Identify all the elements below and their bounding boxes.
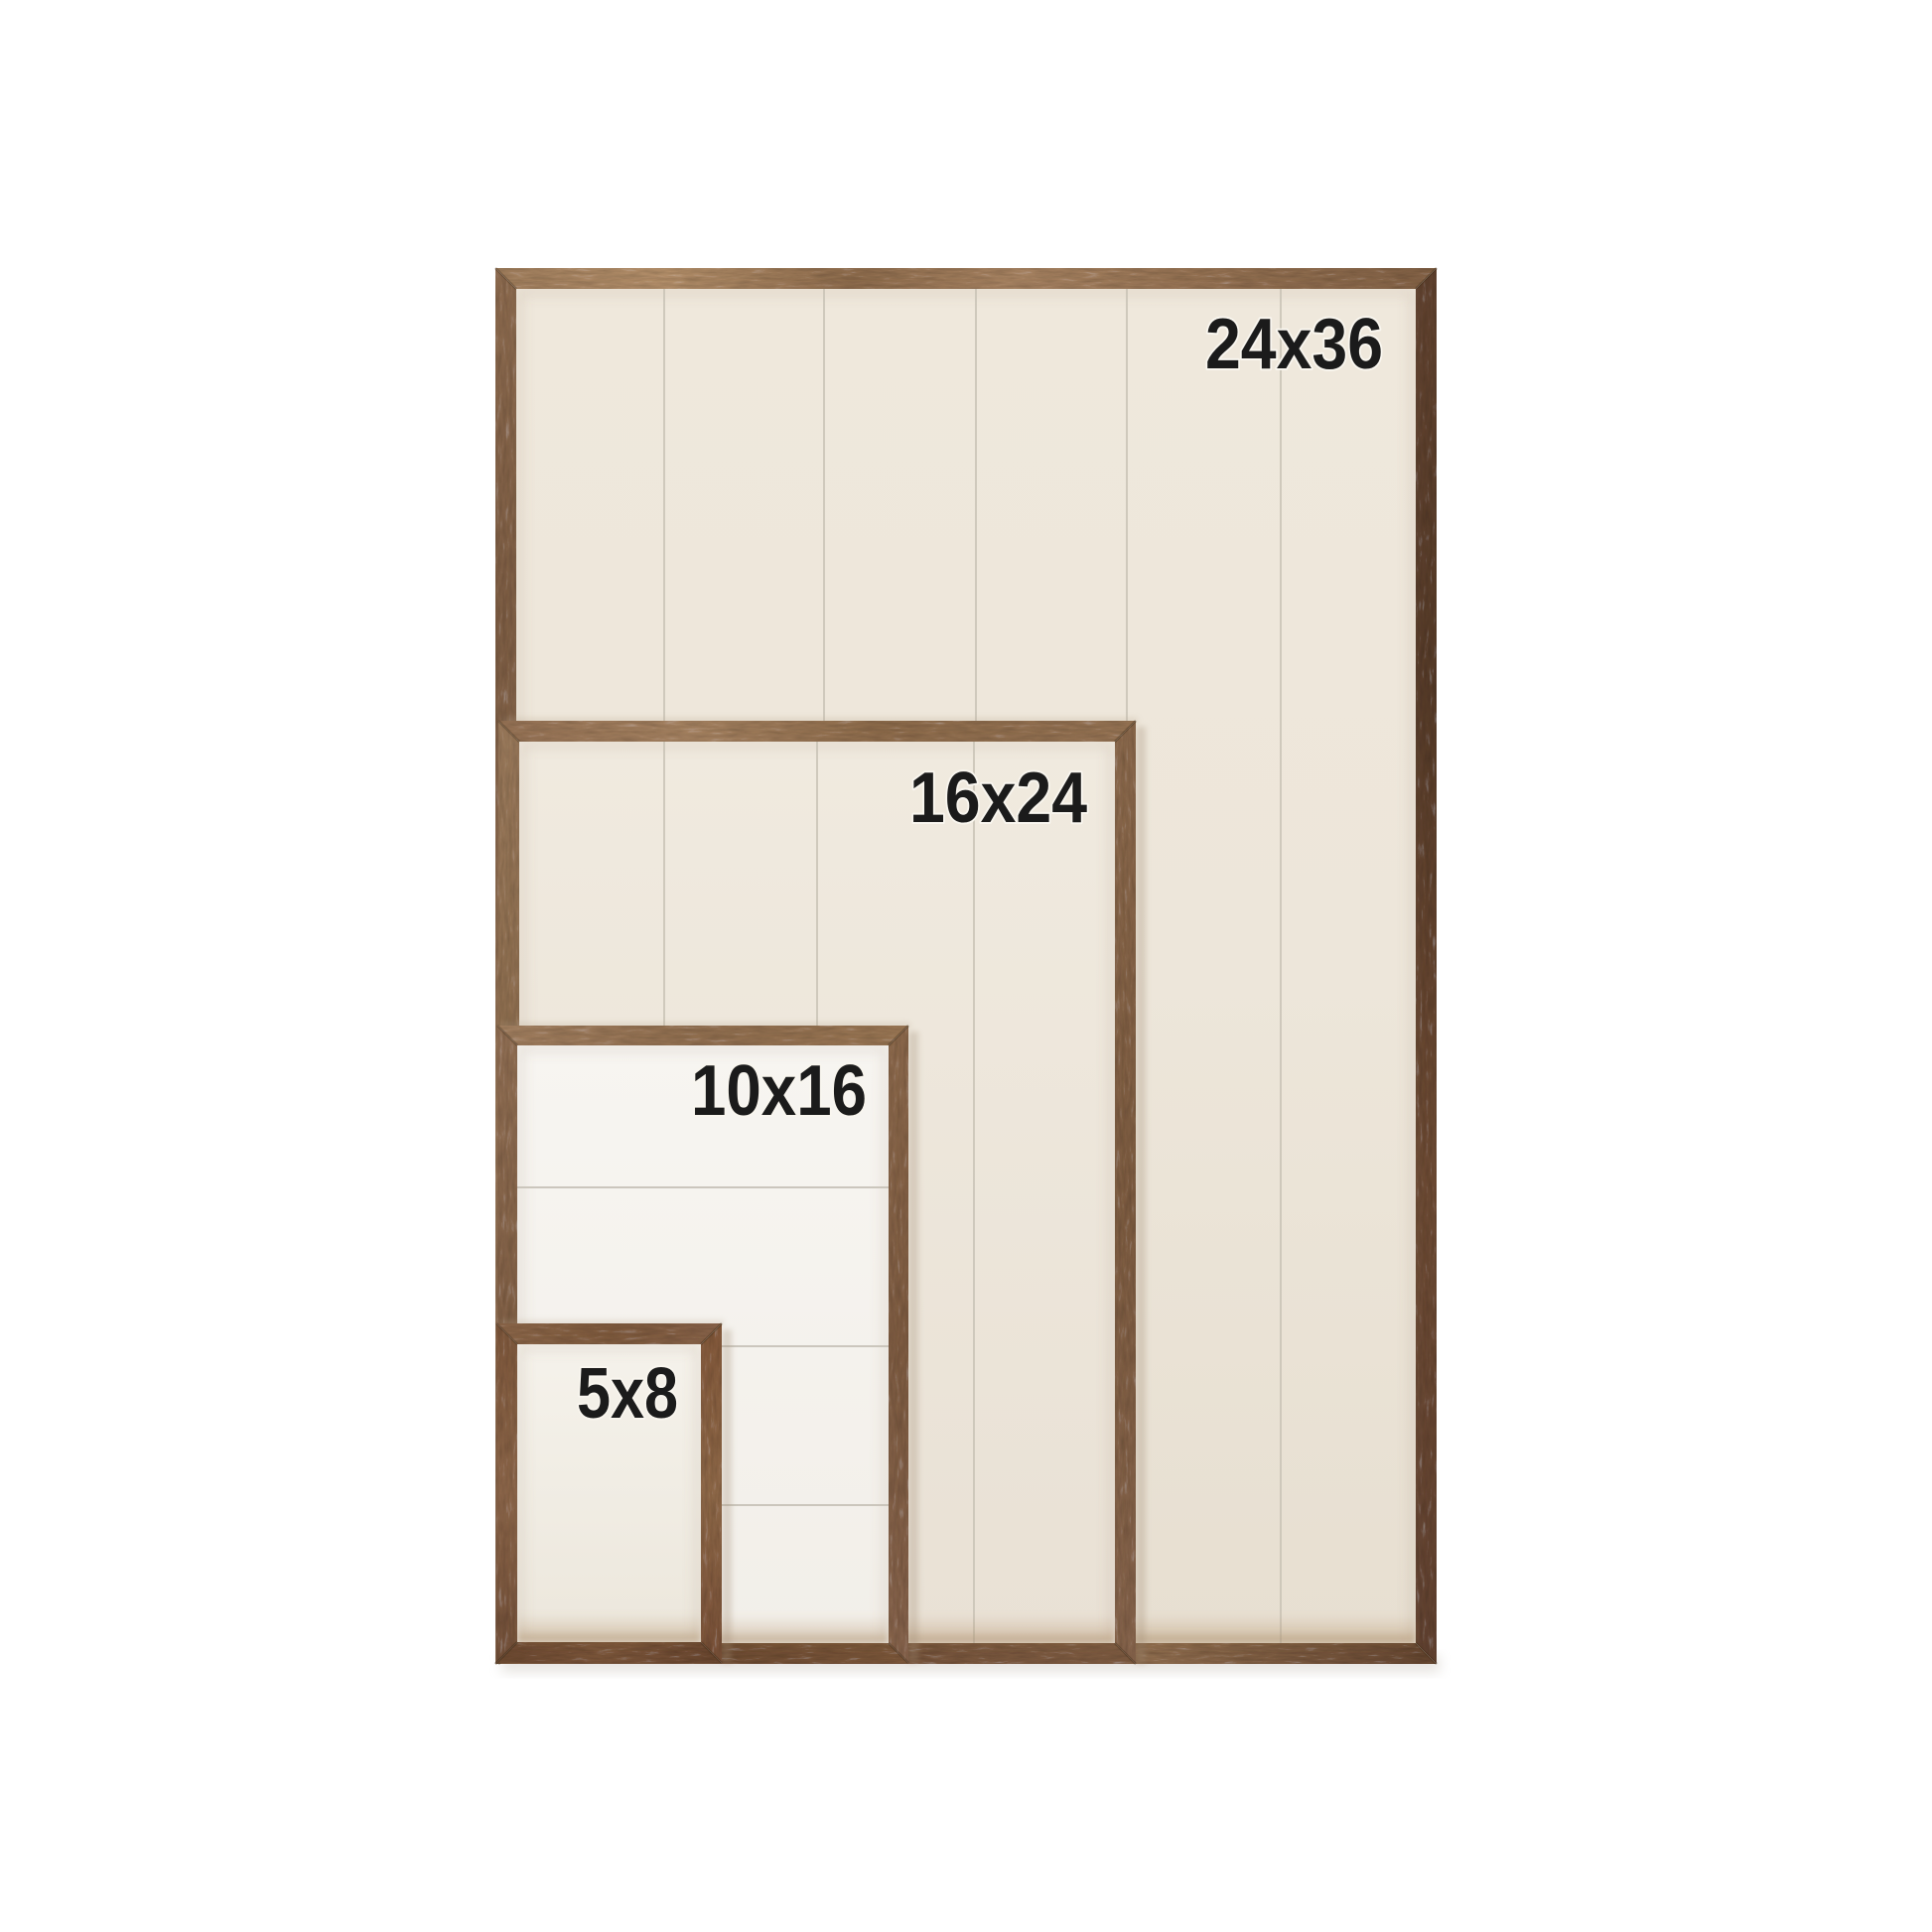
svg-text:10x16: 10x16 <box>691 1051 867 1131</box>
svg-text:16x24: 16x24 <box>909 759 1087 838</box>
svg-text:24x36: 24x36 <box>1205 305 1383 384</box>
svg-text:5x8: 5x8 <box>577 1354 678 1434</box>
